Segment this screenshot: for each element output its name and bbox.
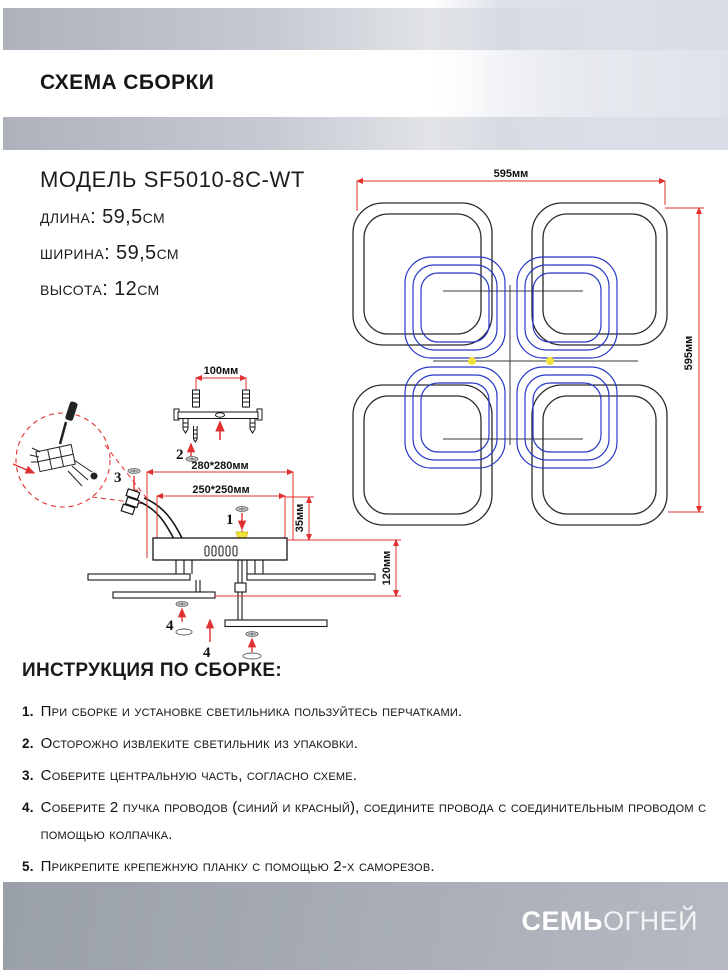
header-band: СХЕМА СБОРКИ xyxy=(0,0,728,150)
terminal-block-sketch xyxy=(30,445,97,486)
footer-band: СЕМЬОГНЕЙ xyxy=(3,882,728,970)
dimension-inner-250 xyxy=(157,496,285,538)
dim-height-label: 120мм xyxy=(381,551,393,586)
instruction-item: 4. Соберите 2 пучка проводов (синий и кр… xyxy=(22,794,716,848)
item-number: 2. xyxy=(22,730,34,757)
item-text: Соберите 2 пучка проводов (синий и красн… xyxy=(41,794,716,848)
item-number: 5. xyxy=(22,853,34,880)
callout-4: 4 xyxy=(166,618,174,634)
item-text: Соберите центральную часть, согласно схе… xyxy=(41,762,716,789)
header-stripe-bottom xyxy=(3,117,603,150)
screw-head-icon xyxy=(243,653,261,659)
screw-head-icon xyxy=(176,629,192,635)
item-text: Осторожно извлеките светильник из упаков… xyxy=(41,730,716,757)
model-length: длина: 59,5см xyxy=(40,206,305,229)
brand-light: ОГНЕЙ xyxy=(603,906,698,936)
dim-inner-label: 250*250мм xyxy=(192,484,249,496)
dimension-bracket-100 xyxy=(196,378,246,408)
dim-width-label: 595мм xyxy=(494,168,529,180)
item-number: 4. xyxy=(22,794,34,848)
model-width: ширина: 59,5см xyxy=(40,242,305,265)
instructions-section: ИНСТРУКЦИЯ ПО СБОРКЕ: 1. При сборке и ус… xyxy=(22,660,716,917)
screw-icon xyxy=(236,507,248,512)
dim-offset-label: 35мм xyxy=(294,504,306,533)
screw-icon xyxy=(176,602,188,607)
header-stripe-top xyxy=(3,8,603,50)
screwdriver-icon xyxy=(60,402,78,444)
fixture-arms xyxy=(88,560,375,627)
item-text: При сборке и установке светильника польз… xyxy=(41,698,716,725)
model-info: МОДЕЛЬ SF5010-8C-WT длина: 59,5см ширина… xyxy=(40,167,305,301)
mounting-bracket xyxy=(174,390,262,442)
callout-1: 1 xyxy=(226,512,234,528)
side-view-drawing: 3 100мм 2 xyxy=(8,352,410,664)
dim-outer-label: 280*280мм xyxy=(191,460,248,472)
instructions-title: ИНСТРУКЦИЯ ПО СБОРКЕ: xyxy=(22,660,716,682)
instruction-item: 1. При сборке и установке светильника по… xyxy=(22,698,716,725)
brand-bold: СЕМЬ xyxy=(522,906,603,936)
item-number: 3. xyxy=(22,762,34,789)
instruction-item: 2. Осторожно извлеките светильник из упа… xyxy=(22,730,716,757)
brand-logo: СЕМЬОГНЕЙ xyxy=(522,906,698,937)
callout-4: 4 xyxy=(203,645,211,661)
screw-icon xyxy=(246,632,258,637)
model-height: высота: 12см xyxy=(40,278,305,301)
instruction-item: 5. Прикрепите крепежную планку с помощью… xyxy=(22,853,716,880)
callout-3: 3 xyxy=(114,470,122,486)
model-name: МОДЕЛЬ SF5010-8C-WT xyxy=(40,167,305,193)
item-text: Прикрепите крепежную планку с помощью 2-… xyxy=(41,853,716,880)
instruction-item: 3. Соберите центральную часть, согласно … xyxy=(22,762,716,789)
screw-icon xyxy=(128,469,140,474)
page-title: СХЕМА СБОРКИ xyxy=(40,71,214,95)
assembly-sheet: { "header": { "title": "СХЕМА СБОРКИ" },… xyxy=(0,0,728,970)
fixture-body xyxy=(153,538,287,560)
callout-2: 2 xyxy=(176,447,184,463)
dim-bracket-label: 100мм xyxy=(204,365,239,377)
item-number: 1. xyxy=(22,698,34,725)
dim-height-label: 595мм xyxy=(683,336,695,371)
